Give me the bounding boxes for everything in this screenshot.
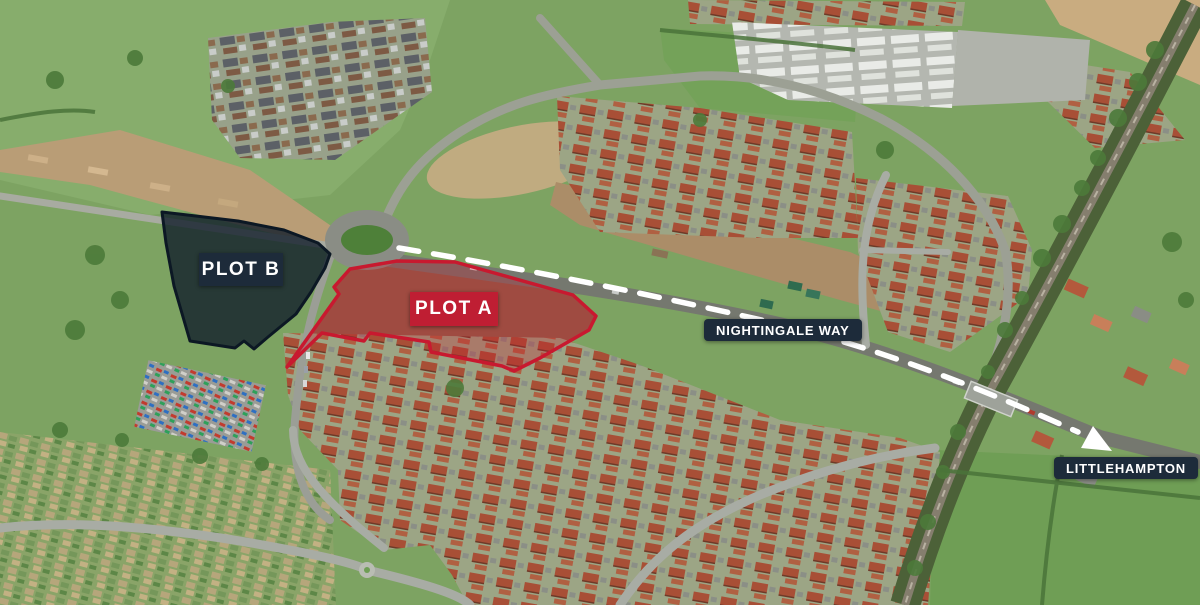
plot-b-label: PLOT B bbox=[199, 253, 283, 286]
plot-a-label: PLOT A bbox=[410, 292, 498, 326]
mini-roundabout bbox=[359, 562, 375, 578]
road-name-label: NIGHTINGALE WAY bbox=[704, 319, 862, 341]
destination-label: LITTLEHAMPTON bbox=[1054, 457, 1198, 479]
aerial-photo-background bbox=[0, 0, 1200, 605]
aerial-site-map: PLOT B PLOT A NIGHTINGALE WAY LITTLEHAMP… bbox=[0, 0, 1200, 605]
